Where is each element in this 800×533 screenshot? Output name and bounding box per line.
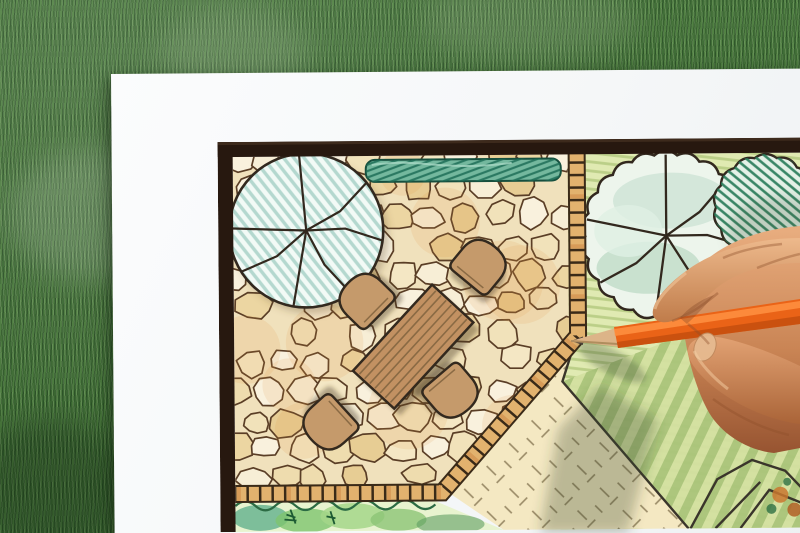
paper-sheet [111,69,800,533]
grass-light-patch [420,0,640,60]
photo-scene [0,0,800,533]
flagstone [251,437,279,456]
garden-plan-drawing [218,138,800,533]
flagstone [488,320,518,349]
grass-dark-patch [0,420,130,533]
flagstone [390,263,416,290]
hedge-symbol [366,158,561,182]
planting-bed [232,499,503,532]
branch-line [666,155,667,236]
flagstone [501,344,531,368]
